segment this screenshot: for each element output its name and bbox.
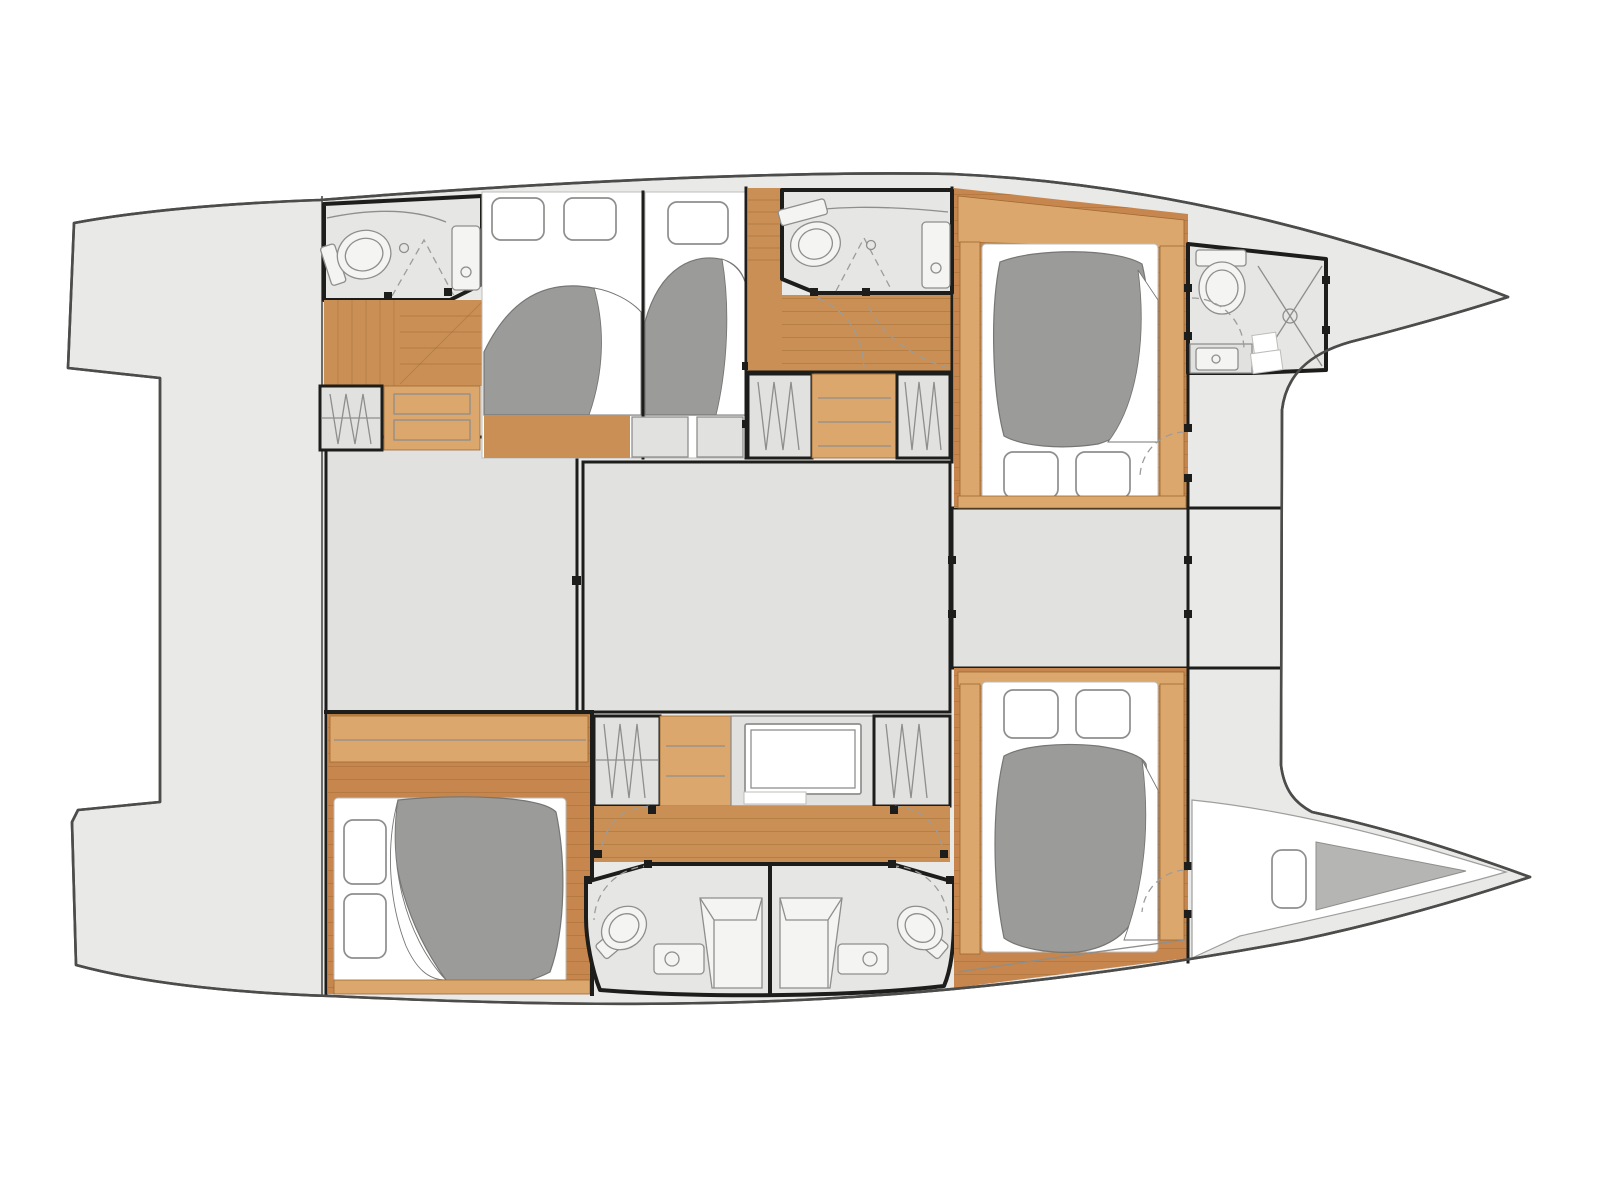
forward-cabin xyxy=(954,188,1188,508)
bed-step-locker xyxy=(697,417,743,457)
door-post xyxy=(940,850,948,858)
door-post xyxy=(1184,424,1192,432)
dresser-box xyxy=(660,716,731,806)
bed-duvet xyxy=(995,744,1149,952)
sink-icon xyxy=(1196,348,1238,370)
plank-lines xyxy=(782,295,952,372)
hull-window xyxy=(492,198,544,240)
stairs-floor xyxy=(324,300,482,386)
door-post xyxy=(1322,276,1330,284)
bed-frame-side xyxy=(960,684,980,954)
aft-cockpit-area xyxy=(326,437,577,712)
door-post xyxy=(648,806,656,814)
door-post xyxy=(444,288,452,296)
hull-window xyxy=(668,202,728,244)
pillow xyxy=(1076,690,1130,738)
mid-cabin xyxy=(632,192,745,458)
door-post xyxy=(644,860,652,868)
hull-window xyxy=(564,198,616,240)
wardrobe-row xyxy=(748,374,950,458)
companionway-stairs xyxy=(324,300,482,386)
vanity-stool xyxy=(744,792,806,804)
sink-icon xyxy=(922,222,950,288)
floor-plan-canvas: Catamaran yacht interior layout — deck f… xyxy=(0,0,1600,1200)
door-post xyxy=(946,876,954,884)
door-post xyxy=(1322,326,1330,334)
aft-bathroom xyxy=(319,196,482,300)
door-post xyxy=(1184,556,1192,564)
floor-plan-page: Catamaran yacht interior layout — deck f… xyxy=(0,0,1600,1200)
aft-cabin xyxy=(326,712,592,994)
pillow xyxy=(1004,452,1058,498)
dresser-aft xyxy=(384,386,480,450)
door-post xyxy=(888,860,896,868)
bed-frame-foot xyxy=(334,980,590,994)
bed-frame-side xyxy=(960,242,980,504)
door-post xyxy=(1184,474,1192,482)
bow-bathroom xyxy=(1184,244,1330,374)
cabin-floor xyxy=(484,415,630,458)
pillow xyxy=(344,820,386,884)
door-post xyxy=(1184,910,1192,918)
wardrobe-box xyxy=(748,374,812,458)
door-post xyxy=(890,806,898,814)
hull-corridor xyxy=(594,806,950,862)
door-post xyxy=(810,288,818,296)
pillow xyxy=(344,894,386,958)
pillow xyxy=(1076,452,1130,498)
door-post xyxy=(384,292,392,300)
shelf-band xyxy=(330,716,588,762)
vanity-mirror xyxy=(745,724,861,794)
mid-bathroom xyxy=(778,190,952,296)
step xyxy=(1250,350,1282,374)
hatch-window xyxy=(1272,850,1306,908)
wardrobe-box xyxy=(594,716,660,806)
door-post xyxy=(948,610,956,618)
salon-area xyxy=(583,462,950,712)
door-post xyxy=(1184,862,1192,870)
door-post xyxy=(594,850,602,858)
door-post xyxy=(572,576,581,585)
wardrobe-row xyxy=(594,716,950,806)
wardrobe-aft xyxy=(320,386,382,450)
port-hull xyxy=(326,668,1506,995)
door-post xyxy=(1184,284,1192,292)
forward-cabin xyxy=(954,668,1188,988)
forward-cockpit-area xyxy=(952,508,1188,668)
door-post xyxy=(584,876,592,884)
sink-icon xyxy=(452,226,480,290)
door-post xyxy=(1184,332,1192,340)
door-post xyxy=(1184,610,1192,618)
bed-frame-side xyxy=(1160,246,1184,504)
door-post xyxy=(862,288,870,296)
aft-cabin xyxy=(482,192,644,458)
bed-frame-side xyxy=(1160,684,1184,940)
door-post xyxy=(948,556,956,564)
bed-step-locker xyxy=(632,417,688,457)
pillow xyxy=(1004,690,1058,738)
twin-bathrooms xyxy=(584,860,954,995)
toilet-icon xyxy=(1196,250,1246,314)
bed-frame-foot xyxy=(958,496,1186,508)
plank-lines xyxy=(594,806,950,862)
